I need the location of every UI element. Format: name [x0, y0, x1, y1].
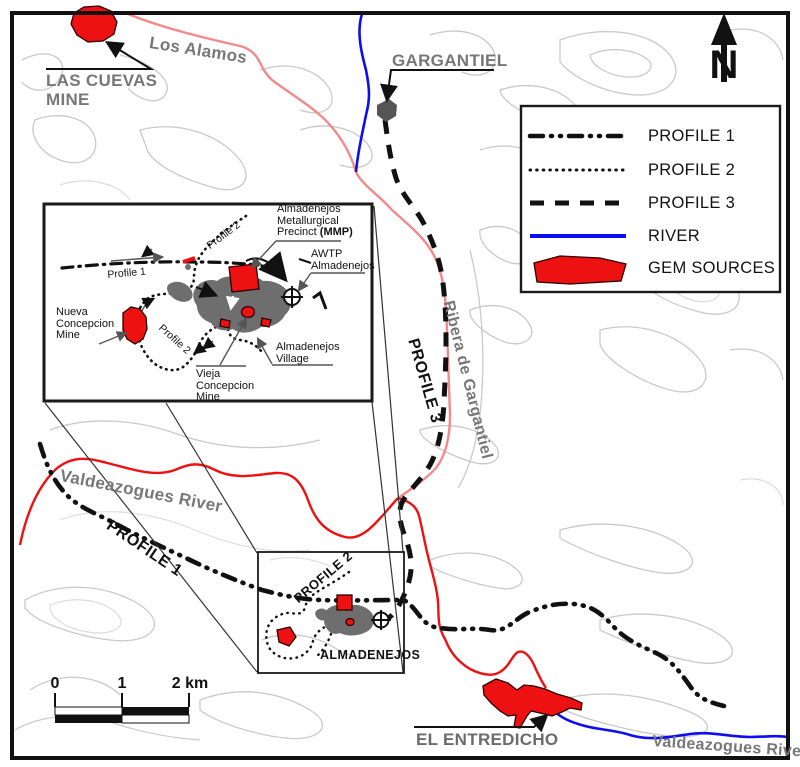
las-cuevas-mine-label: LAS CUEVAS MINE — [46, 71, 157, 109]
legend-label-river: RIVER — [648, 227, 700, 246]
nueva-concepcion-gem-small — [277, 627, 296, 646]
map-figure: N LAS CUEVAS MINE Los Alamos GARGANTIEL … — [0, 0, 800, 767]
gargantiel-river-upper — [356, 14, 369, 172]
vieja-concepcion-mine-label: Vieja Concepcion Mine — [196, 369, 254, 404]
vieja-concepcion-gem-small — [346, 619, 354, 626]
gargantiel-town-polygon — [377, 99, 397, 122]
legend-label-profile-2: PROFILE 2 — [648, 161, 735, 180]
legend-sample-gem-sources — [534, 256, 626, 284]
almadenejos-village-label: Almadenejos Village — [276, 342, 340, 365]
awtp-label: AWTP Almadenejos — [311, 249, 375, 272]
almadenejos-village-small-arm — [315, 609, 328, 621]
mmp-label: Almadenejos Metallurgical Precinct (MMP) — [277, 204, 353, 239]
nueva-concepcion-mine-label: Nueva Concepcion Mine — [56, 307, 114, 342]
scale-tick-2: 2 km — [172, 675, 208, 693]
north-arrow: N — [710, 13, 739, 87]
almadenejos-label: ALMADENEJOS — [320, 648, 420, 662]
scale-bar — [55, 693, 189, 723]
north-label: N — [710, 43, 739, 87]
scale-tick-1: 1 — [118, 675, 127, 693]
el-entredicho-label: EL ENTREDICHO — [416, 730, 558, 750]
gargantiel-label: GARGANTIEL — [392, 51, 507, 71]
legend-label-profile-3: PROFILE 3 — [648, 194, 735, 213]
legend-label-profile-1: PROFILE 1 — [648, 127, 735, 146]
legend-label-gem-sources: GEM SOURCES — [648, 259, 775, 278]
mmp-square-small — [337, 595, 352, 610]
nueva-concepcion-gem-inset — [123, 307, 147, 344]
scale-tick-0: 0 — [51, 675, 60, 693]
awtp-symbol-small — [371, 610, 391, 630]
vieja-concepcion-gem-inset — [242, 307, 255, 318]
mmp-square-inset — [229, 264, 259, 292]
